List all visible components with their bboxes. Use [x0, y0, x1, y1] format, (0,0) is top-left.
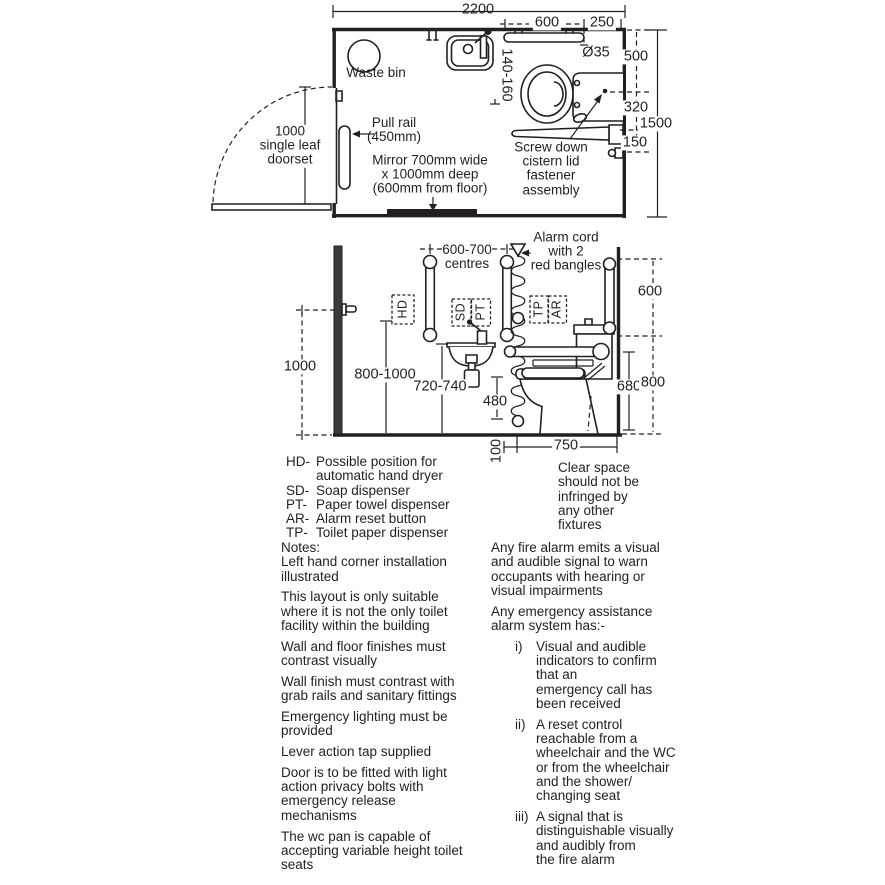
alarm-cord-label: Alarm cord with 2 red bangles: [531, 231, 602, 274]
legend-desc: Paper towel dispenser: [316, 498, 450, 512]
note-paragraph: Wall and floor finishes must contrast vi…: [281, 640, 486, 669]
legend-desc: Toilet paper dispenser: [316, 526, 448, 540]
sd-tag: SD: [454, 303, 467, 321]
alarm-list-item-iii: iii) A signal that is distinguishable vi…: [515, 810, 691, 867]
list-text: Visual and audible indicators to confirm…: [536, 640, 657, 711]
dim-dia35-label: Ø35: [582, 45, 609, 60]
alarm-list-item-ii: ii) A reset control reachable from a whe…: [515, 718, 691, 804]
dim-500-label: 500: [622, 49, 650, 64]
legend-item-pt: PT- Paper towel dispenser: [286, 498, 501, 512]
dim-handle-1000-label: 1000: [282, 359, 318, 374]
door-handle: [342, 304, 356, 315]
note-paragraph: Any emergency assistance alarm system ha…: [491, 605, 691, 634]
notes-title: Notes:: [281, 541, 486, 555]
legend-abbr: AR-: [286, 512, 316, 526]
note-paragraph: The wc pan is capable of accepting varia…: [281, 830, 486, 873]
note-paragraph: Left hand corner installation illustrate…: [281, 555, 486, 584]
dim-480-label: 480: [481, 394, 509, 409]
note-paragraph: Emergency lighting must be provided: [281, 710, 486, 739]
legend-item-ar: AR- Alarm reset button: [286, 512, 501, 526]
legend-abbr: HD-: [286, 455, 316, 484]
basin-trap: [466, 355, 477, 363]
legend: HD- Possible position for automatic hand…: [286, 455, 501, 541]
tp-tag: TP: [532, 301, 545, 318]
list-text: A reset control reachable from a wheelch…: [536, 718, 676, 804]
dim-2200-label: 2200: [462, 2, 494, 17]
pt-tag: PT: [474, 304, 487, 321]
legend-item-hd: HD- Possible position for automatic hand…: [286, 455, 501, 484]
dim-600-elev-label: 600: [636, 284, 664, 299]
dim-1500-label: 1500: [638, 116, 674, 131]
legend-item-tp: TP- Toilet paper dispenser: [286, 526, 501, 540]
elevation-door-edge: [334, 246, 342, 434]
plan-tap: [481, 36, 487, 58]
dim-720-740-label: 720-740: [411, 379, 468, 394]
legend-abbr: TP-: [286, 526, 316, 540]
list-number: ii): [515, 718, 536, 804]
elevation-view: [296, 244, 662, 453]
legend-desc: Possible position for automatic hand dry…: [316, 455, 443, 484]
note-paragraph: Any fire alarm emits a visual and audibl…: [491, 541, 691, 598]
dim-750-label: 750: [552, 438, 580, 453]
legend-item-sd: SD- Soap dispenser: [286, 484, 501, 498]
elevation-pan: [520, 379, 598, 434]
note-paragraph: Door is to be fitted with light action p…: [281, 766, 486, 823]
plan-wc: [521, 65, 623, 124]
dim-800-1000-label: 800-1000: [352, 367, 417, 382]
list-number: iii): [515, 810, 536, 867]
clear-space-note: Clear space should not be infringed by a…: [558, 461, 639, 532]
elevation-basin: [447, 319, 495, 387]
dim-800-label: 800: [639, 375, 667, 390]
notes-right-column: Any fire alarm emits a visual and audibl…: [491, 541, 691, 874]
open-door-leaf: [212, 204, 331, 210]
notes-left-column: Notes: Left hand corner installation ill…: [281, 541, 486, 879]
legend-desc: Alarm reset button: [316, 512, 426, 526]
wall-vertical-rail: [604, 258, 616, 334]
alarm-list-item-i: i) Visual and audible indicators to conf…: [515, 640, 691, 711]
coat-hook: [427, 30, 439, 40]
legend-abbr: SD-: [286, 484, 316, 498]
drop-rail-hinge: [593, 344, 609, 360]
ar-tag: AR: [550, 300, 563, 318]
pull-rail-label: Pull rail (450mm): [367, 116, 421, 144]
mirror-arrow: [429, 197, 437, 211]
legend-abbr: PT-: [286, 498, 316, 512]
alarm-bangle-upper: [513, 313, 524, 324]
plan-basin: [447, 28, 493, 70]
doc-m-toilet-diagram: 2200 600 250 Ø35 140-160 500 320 150 150…: [0, 0, 885, 885]
plan-pull-rail: [339, 126, 350, 189]
dim-150-label: 150: [621, 135, 649, 150]
waste-bin-label: Waste bin: [346, 66, 406, 80]
note-paragraph: Wall finish must contrast with grab rail…: [281, 675, 486, 704]
cistern-fastener-label: Screw down cistern lid fastener assembly: [514, 141, 588, 198]
list-number: i): [515, 640, 536, 711]
dim-250-label: 250: [588, 15, 616, 30]
elevation-tap: [478, 331, 487, 344]
dim-320-label: 320: [622, 100, 650, 115]
list-text: A signal that is distinguishable visuall…: [536, 810, 673, 867]
door-label: 1000 single leaf doorset: [260, 125, 321, 168]
dim-rail-centres-label: 600-700 centres: [442, 243, 492, 271]
dim-600-label: 600: [533, 15, 561, 30]
alarm-bangle-lower: [513, 416, 524, 427]
note-paragraph: This layout is only suitable where it is…: [281, 590, 486, 633]
mirror-label: Mirror 700mm wide x 1000mm deep (600mm f…: [372, 154, 488, 197]
legend-desc: Soap dispenser: [316, 484, 410, 498]
hd-tag: HD: [396, 299, 409, 318]
note-paragraph: Lever action tap supplied: [281, 745, 486, 759]
dim-140-160-label: 140-160: [498, 48, 513, 101]
plan-mirror: [387, 209, 477, 215]
